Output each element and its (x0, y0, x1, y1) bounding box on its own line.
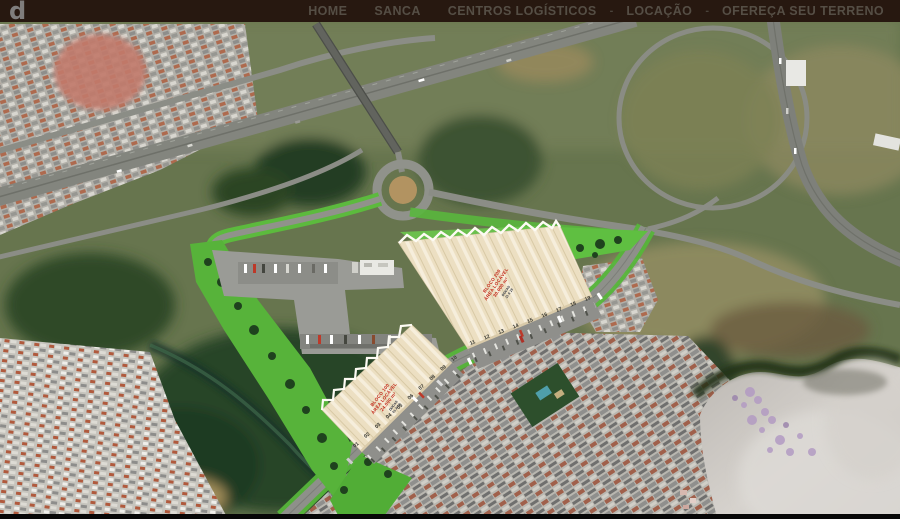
nav-items: HOMESANCACENTROS LOGÍSTICOS-LOCAÇÃO-OFER… (308, 4, 900, 18)
nav-item[interactable]: SANCA (374, 4, 420, 18)
top-navbar: d HOMESANCACENTROS LOGÍSTICOS-LOCAÇÃO-OF… (0, 0, 900, 22)
lake (695, 352, 900, 519)
letterbox-strip (0, 514, 900, 519)
nav-item[interactable]: OFEREÇA SEU TERRENO (722, 4, 884, 18)
nav-item[interactable]: HOME (308, 4, 347, 18)
nav-separator: - (705, 5, 709, 17)
nav-item[interactable]: CENTROS LOGÍSTICOS (448, 4, 597, 18)
nav-item[interactable]: LOCAÇÃO (626, 4, 692, 18)
aerial-masterplan-image: 01020304050607080910 111213141516171819 … (0, 0, 900, 519)
dirt-patch (54, 34, 146, 110)
site-logo: d (9, 0, 26, 25)
site-screenshot: 01020304050607080910 111213141516171819 … (0, 0, 900, 519)
toll-plaza (786, 60, 806, 86)
nav-separator: - (610, 5, 614, 17)
